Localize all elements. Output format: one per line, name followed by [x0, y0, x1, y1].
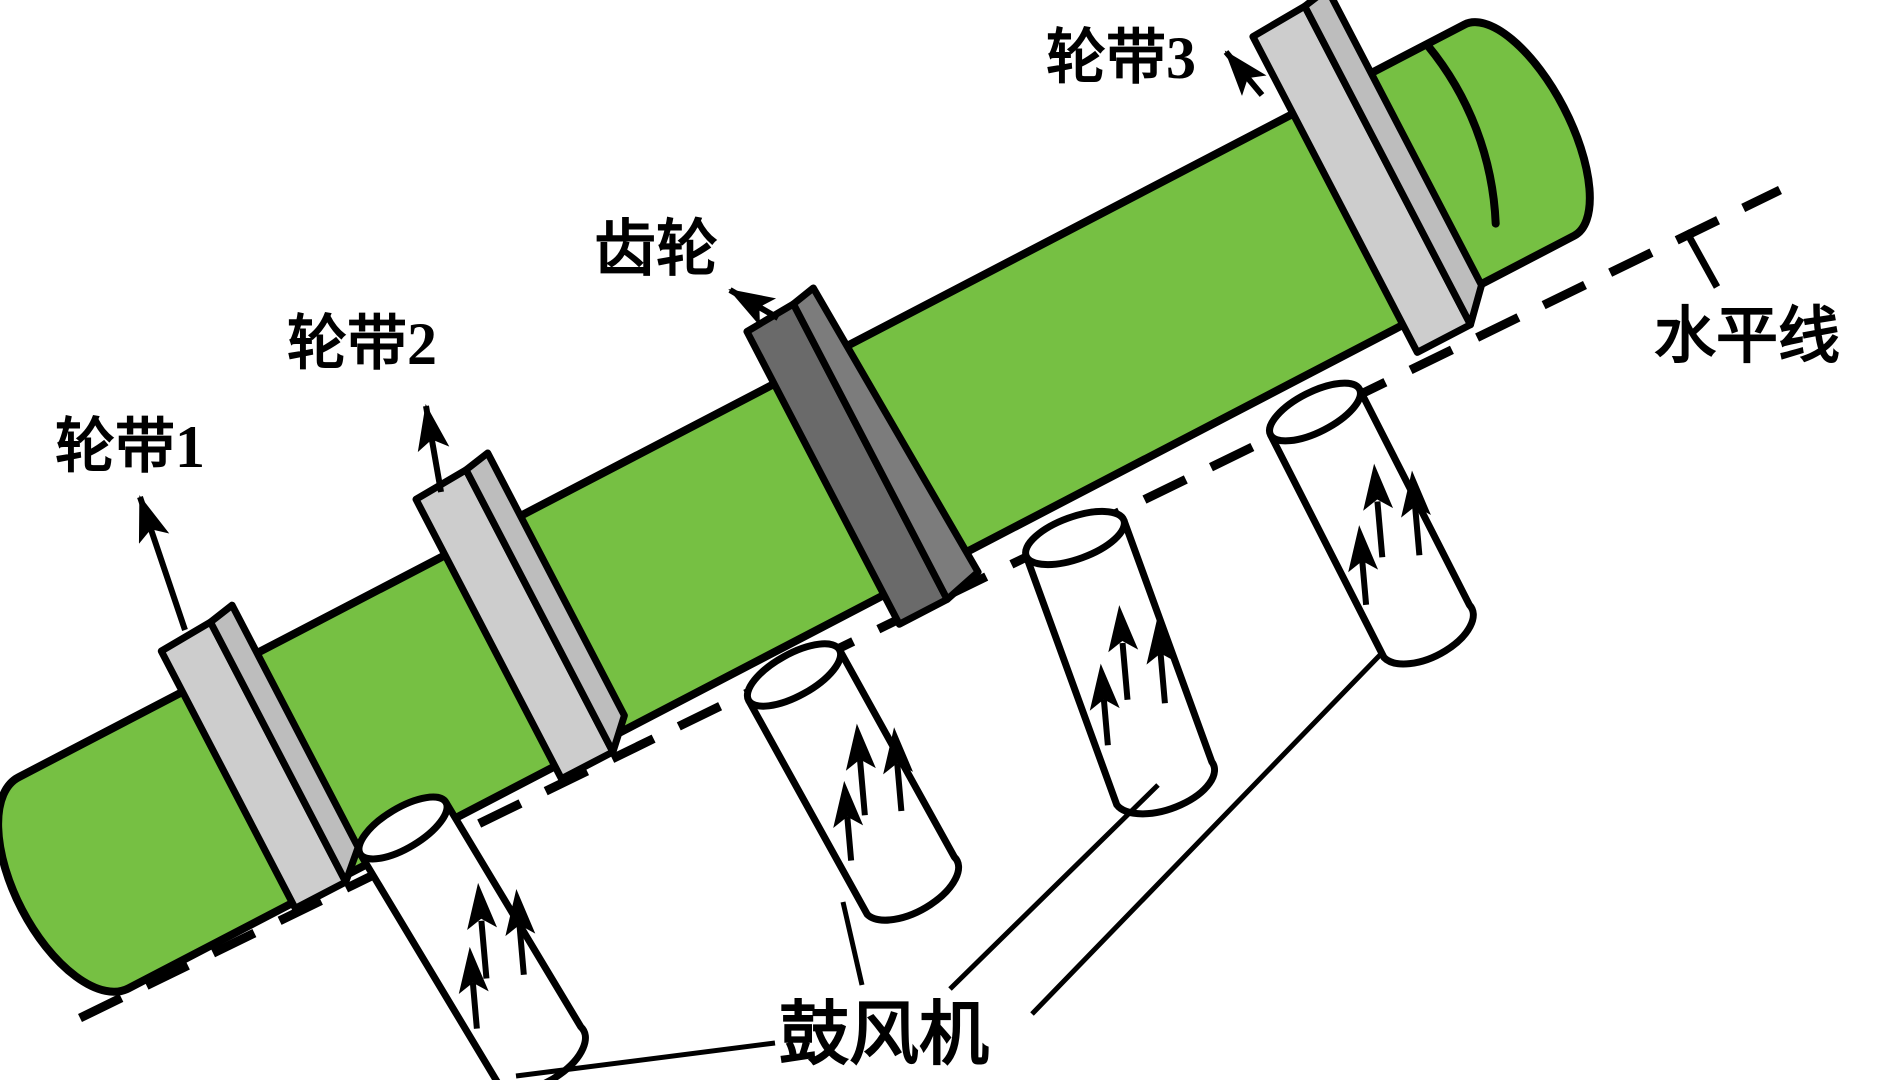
label-ring2: 轮带2	[287, 311, 437, 377]
blower-3	[1017, 496, 1234, 826]
leader-arrow-gear	[730, 290, 778, 318]
leader-line-blower-3	[950, 785, 1158, 989]
leader-arrow-ring1	[140, 497, 185, 630]
label-horizontal-line: 水平线	[1654, 302, 1840, 371]
label-ring1: 轮带1	[55, 414, 205, 480]
leader-arrow-ring2	[426, 406, 441, 492]
leader-arrow-ring3	[1226, 52, 1262, 95]
blower-4	[1256, 361, 1504, 680]
label-ring3: 轮带3	[1046, 25, 1196, 91]
kiln-diagram: 轮带1 轮带2 齿轮 轮带3 水平线 鼓风机	[0, 0, 1890, 1080]
angle-tick-icon	[1686, 231, 1717, 287]
leader-line-blower-2	[843, 902, 862, 985]
label-gear: 齿轮	[594, 215, 718, 284]
label-blower: 鼓风机	[779, 997, 989, 1074]
diagram-canvas: 轮带1 轮带2 齿轮 轮带3 水平线 鼓风机	[0, 0, 1890, 1080]
blower-2	[737, 620, 990, 935]
